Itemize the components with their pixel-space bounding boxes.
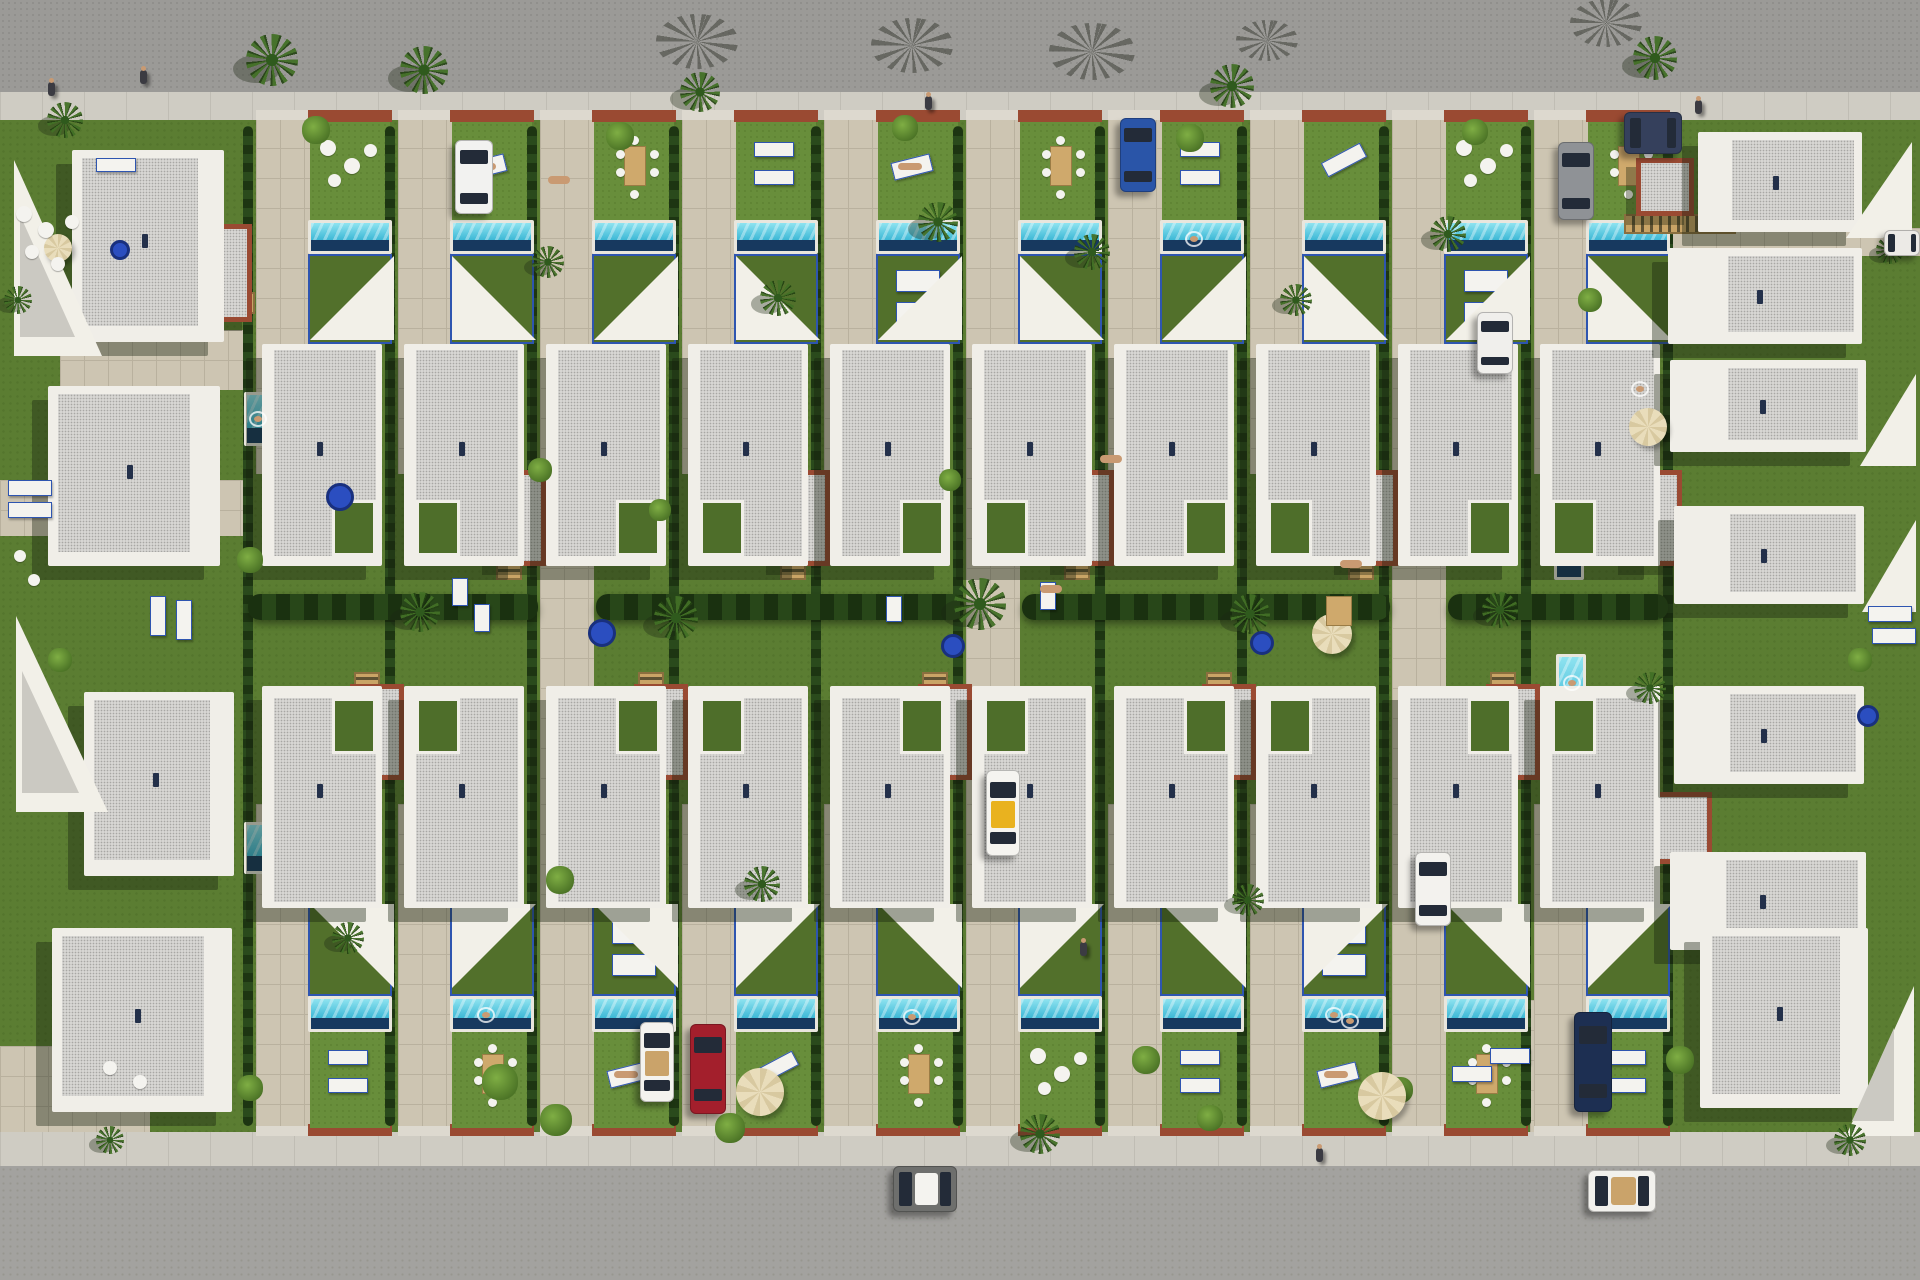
sunbather xyxy=(1040,585,1062,593)
drive-curb xyxy=(1250,110,1302,120)
windshield xyxy=(1630,118,1642,148)
dining-chair xyxy=(914,1098,923,1107)
townhouse xyxy=(404,686,524,908)
shrub xyxy=(939,469,961,491)
drive-curb xyxy=(540,110,592,120)
corner-villa xyxy=(1700,928,1868,1108)
townhouse xyxy=(1540,686,1660,908)
dining-chair xyxy=(1042,168,1051,177)
roof-hatch xyxy=(153,773,159,787)
drive-curb xyxy=(1534,110,1586,120)
drive-curb xyxy=(1392,1126,1444,1136)
garden-chair xyxy=(1464,174,1477,187)
dining-chair xyxy=(1076,150,1085,159)
townhouse xyxy=(830,344,950,566)
swimmer xyxy=(908,1014,916,1020)
windshield xyxy=(1481,321,1508,332)
palm-tree xyxy=(1834,1124,1866,1156)
palm-shadow xyxy=(871,18,953,72)
planter-curb xyxy=(734,110,818,122)
shrub xyxy=(649,499,671,521)
sun-lounger xyxy=(452,578,468,606)
palm-tree xyxy=(246,34,298,86)
garden-dining-set xyxy=(1326,596,1352,626)
roof-hatch xyxy=(1761,729,1767,743)
pool-water xyxy=(737,999,815,1018)
shrub xyxy=(482,1064,518,1100)
townhouse xyxy=(546,344,666,566)
dining-chair xyxy=(1502,1076,1511,1085)
shrub xyxy=(892,115,918,141)
garden-chair xyxy=(1030,1048,1046,1064)
swimming-pool xyxy=(450,220,534,254)
planter-curb xyxy=(1018,110,1102,122)
palm-shadow xyxy=(656,14,738,68)
car-sedan-blue xyxy=(1120,118,1156,192)
drive-curb xyxy=(682,110,734,120)
corner-villa xyxy=(1668,248,1862,344)
garden-chair xyxy=(1074,1052,1087,1065)
dining-chair xyxy=(474,1058,483,1067)
shrub xyxy=(606,122,634,150)
rear-window xyxy=(990,832,1016,844)
sun-lounger xyxy=(96,158,136,172)
corner-villa xyxy=(1698,132,1862,232)
roof-hatch xyxy=(601,442,607,456)
sunbather xyxy=(1340,560,1362,568)
car-car-edge-white xyxy=(1884,230,1920,256)
parasol xyxy=(1358,1072,1406,1120)
front-garden xyxy=(1304,122,1384,220)
garden-chair xyxy=(1054,1066,1070,1082)
pool-water xyxy=(595,999,673,1018)
sun-lounger xyxy=(176,600,192,640)
lounge-chair xyxy=(103,1061,117,1075)
palm-tree xyxy=(332,922,364,954)
sun-lounger xyxy=(1180,170,1220,185)
roof-hatch xyxy=(459,442,465,456)
annex-roof xyxy=(1636,158,1694,216)
corner-villa xyxy=(1670,360,1866,452)
swimming-pool xyxy=(734,996,818,1032)
sun-lounger xyxy=(1868,606,1912,622)
palm-tree xyxy=(400,46,448,94)
sun-lounger xyxy=(1180,1050,1220,1065)
roof-hatch xyxy=(1761,549,1767,563)
sun-lounger xyxy=(1606,1078,1646,1093)
garden-chair xyxy=(344,158,360,174)
palm-tree xyxy=(47,102,83,138)
shrub xyxy=(237,547,263,573)
pedestrian-head xyxy=(1696,96,1701,101)
roof-hatch xyxy=(1777,1007,1783,1021)
windshield xyxy=(644,1033,670,1047)
planter-curb xyxy=(450,110,534,122)
roof-patio xyxy=(416,500,460,556)
pedestrian xyxy=(1695,100,1702,114)
palm-tree xyxy=(1210,64,1254,108)
sun-lounger xyxy=(474,604,490,632)
dining-chair xyxy=(488,1044,497,1053)
palm-tree xyxy=(744,866,780,902)
roof-hatch xyxy=(1311,784,1317,798)
dining-chair xyxy=(1042,150,1051,159)
drive-curb xyxy=(398,110,450,120)
roof-hatch xyxy=(1760,895,1766,909)
garden-chair xyxy=(1038,1082,1051,1095)
roof-hatch xyxy=(1595,442,1601,456)
flat-roof xyxy=(1728,368,1858,440)
shrub xyxy=(48,648,72,672)
garden-chair xyxy=(364,144,377,157)
drive-curb xyxy=(824,110,876,120)
car-suv-white xyxy=(1415,852,1451,926)
palm-tree xyxy=(954,578,1006,630)
roof-hatch xyxy=(1453,784,1459,798)
shrub xyxy=(546,866,574,894)
corner-villa xyxy=(48,386,220,566)
dining-chair xyxy=(1056,136,1065,145)
roof-hatch xyxy=(1453,442,1459,456)
windshield xyxy=(1595,1176,1609,1206)
townhouse xyxy=(688,344,808,566)
corner-villa xyxy=(1674,686,1864,784)
dining-chair xyxy=(900,1076,909,1085)
round-table xyxy=(1250,631,1274,655)
townhouse xyxy=(262,344,382,566)
dining-chair xyxy=(1624,190,1633,199)
planter-curb xyxy=(876,110,960,122)
pedestrian-head xyxy=(49,78,54,83)
swimmer xyxy=(254,416,262,422)
swimmer xyxy=(1568,680,1576,686)
corner-villa xyxy=(84,692,234,876)
front-garden xyxy=(878,1030,958,1128)
flat-roof xyxy=(58,394,190,552)
roof-patio xyxy=(1184,698,1228,754)
drive-curb xyxy=(1250,1126,1302,1136)
roof-hatch xyxy=(317,442,323,456)
roof-hatch xyxy=(142,234,148,248)
swimming-pool xyxy=(1302,220,1386,254)
drive-curb xyxy=(824,1126,876,1136)
dining-chair xyxy=(1610,150,1619,159)
round-table xyxy=(326,483,354,511)
dining-chair xyxy=(650,150,659,159)
dining-chair xyxy=(616,150,625,159)
sun-lounger xyxy=(150,596,166,636)
rear-window xyxy=(1667,118,1676,148)
pool-water xyxy=(595,223,673,240)
sun-lounger xyxy=(1180,1078,1220,1093)
windshield xyxy=(990,782,1016,797)
roof-hatch xyxy=(459,784,465,798)
lounge-chair xyxy=(28,574,40,586)
drive-curb xyxy=(256,110,308,120)
palm-tree xyxy=(1074,234,1110,270)
car-sedan-white xyxy=(1477,312,1513,374)
swimmer xyxy=(1346,1018,1354,1024)
drive-curb xyxy=(966,1126,1018,1136)
dining-table xyxy=(908,1054,930,1094)
round-table xyxy=(1857,705,1879,727)
sunbather xyxy=(614,1071,638,1078)
shrub xyxy=(1666,1046,1694,1074)
pedestrian-head xyxy=(1317,1144,1322,1149)
drive-curb xyxy=(966,110,1018,120)
shrub xyxy=(540,1104,572,1136)
sunbather xyxy=(1324,1071,1348,1078)
pool-water xyxy=(311,999,389,1018)
rear-window xyxy=(1481,357,1508,366)
sun-lounger xyxy=(886,596,902,622)
dining-table xyxy=(1050,146,1072,186)
pool-water xyxy=(453,223,531,240)
swimmer xyxy=(1190,236,1198,242)
car-sedan-darkblue xyxy=(1624,112,1682,154)
swimmer xyxy=(482,1012,490,1018)
sun-lounger xyxy=(1490,1048,1530,1064)
car-sedan-red xyxy=(690,1024,726,1114)
dining-chair xyxy=(1076,168,1085,177)
windshield xyxy=(1579,1026,1608,1044)
shrub xyxy=(237,1075,263,1101)
garden-chair xyxy=(1480,158,1496,174)
sun-lounger xyxy=(1321,143,1367,178)
palm-tree xyxy=(1430,216,1466,252)
roof-patio xyxy=(332,698,376,754)
lounge-chair xyxy=(25,245,39,259)
pedestrian-head xyxy=(141,66,146,71)
roof-hatch xyxy=(1169,784,1175,798)
roof-hatch xyxy=(1595,784,1601,798)
roof-patio xyxy=(1184,500,1228,556)
dining-chair xyxy=(900,1058,909,1067)
parasol xyxy=(1629,408,1667,446)
palm-tree xyxy=(1230,594,1270,634)
dining-chair xyxy=(630,190,639,199)
roof-hatch xyxy=(1760,400,1766,414)
roof-hatch xyxy=(1773,176,1779,190)
drive-curb xyxy=(1392,110,1444,120)
swimming-pool xyxy=(592,220,676,254)
pool-water xyxy=(311,223,389,240)
flat-roof xyxy=(1712,936,1840,1094)
windshield xyxy=(1419,862,1446,875)
townhouse xyxy=(1540,344,1660,566)
car-convertible-road xyxy=(1588,1170,1656,1212)
aerial-site-plan-render xyxy=(0,0,1920,1280)
sunbather xyxy=(1100,455,1122,463)
roof-patio xyxy=(900,698,944,754)
roof-patio xyxy=(1268,500,1312,556)
townhouse xyxy=(1256,344,1376,566)
sun-lounger xyxy=(1452,1066,1492,1082)
pool-water xyxy=(1021,999,1099,1018)
roof-hatch xyxy=(1027,442,1033,456)
rear-window xyxy=(1579,1084,1608,1098)
roof-hatch xyxy=(135,1009,141,1023)
palm-tree xyxy=(1482,592,1518,628)
roof-patio xyxy=(984,698,1028,754)
palm-tree xyxy=(532,246,564,278)
dining-chair xyxy=(650,168,659,177)
sunbather xyxy=(548,176,570,184)
roof-hatch xyxy=(317,784,323,798)
car-roof xyxy=(1611,1177,1635,1206)
windshield xyxy=(1888,234,1895,253)
sun-lounger xyxy=(328,1078,368,1093)
flat-roof xyxy=(1730,514,1856,592)
front-garden xyxy=(310,1030,390,1128)
townhouse xyxy=(1398,344,1518,566)
pedestrian-head xyxy=(926,92,931,97)
flat-roof xyxy=(94,700,210,860)
pedestrian-head xyxy=(1081,938,1086,943)
flat-roof xyxy=(1726,860,1858,938)
car-roof xyxy=(915,1173,938,1204)
rear-window xyxy=(1419,905,1446,915)
roof-patio xyxy=(900,500,944,556)
dining-chair xyxy=(616,168,625,177)
annex-roof-deck xyxy=(1641,163,1689,211)
windshield xyxy=(460,150,489,163)
front-garden xyxy=(1020,122,1100,220)
corner-villa xyxy=(1674,506,1864,604)
round-table xyxy=(941,634,965,658)
sun-lounger xyxy=(754,170,794,185)
drive-curb xyxy=(1108,1126,1160,1136)
front-garden xyxy=(736,122,816,220)
rear-window xyxy=(940,1172,950,1205)
swimming-pool xyxy=(1444,996,1528,1032)
roof-hatch xyxy=(1757,290,1763,304)
rear-window xyxy=(1911,234,1917,253)
car-sedan-gray xyxy=(1558,142,1594,220)
roof-patio xyxy=(1468,698,1512,754)
shrub xyxy=(1176,124,1204,152)
rear-window xyxy=(460,193,489,203)
roof-patio xyxy=(1552,698,1596,754)
dining-chair xyxy=(934,1058,943,1067)
palm-tree xyxy=(760,280,796,316)
townhouse xyxy=(972,344,1092,566)
palm-tree xyxy=(1280,284,1312,316)
lounge-chair xyxy=(38,222,54,238)
roof-hatch xyxy=(743,442,749,456)
pool-water xyxy=(1447,999,1525,1018)
palm-shadow xyxy=(1570,0,1642,47)
rear-window xyxy=(1124,171,1151,181)
shrub xyxy=(1578,288,1602,312)
roof-patio xyxy=(700,500,744,556)
pedestrian xyxy=(1080,942,1087,956)
roof-hatch xyxy=(743,784,749,798)
swimming-pool xyxy=(1160,996,1244,1032)
rear-window xyxy=(694,1089,721,1102)
bottom-sidewalk xyxy=(0,1132,1920,1166)
roof-hatch xyxy=(1027,784,1033,798)
car-hatchback-road xyxy=(893,1166,957,1212)
rear-window xyxy=(1638,1176,1649,1206)
garden-chair xyxy=(328,174,341,187)
lounge-chair xyxy=(51,257,65,271)
pedestrian xyxy=(140,70,147,84)
pedestrian xyxy=(48,82,55,96)
lounge-chair xyxy=(16,206,32,222)
planter-curb xyxy=(1160,110,1244,122)
palm-tree xyxy=(680,72,720,112)
palm-tree xyxy=(1232,884,1264,916)
shrub xyxy=(302,116,330,144)
townhouse xyxy=(262,686,382,908)
palm-tree xyxy=(654,596,698,640)
townhouse xyxy=(404,344,524,566)
round-table xyxy=(110,240,130,260)
front-garden xyxy=(1020,1030,1100,1128)
drive-curb xyxy=(256,1126,308,1136)
shrub xyxy=(715,1113,745,1143)
palm-tree xyxy=(1634,672,1666,704)
roof-hatch xyxy=(1169,442,1175,456)
car-suv-white xyxy=(455,140,493,214)
roof-hatch xyxy=(601,784,607,798)
roof-hatch xyxy=(885,442,891,456)
sun-lounger xyxy=(328,1050,368,1065)
garden-chair xyxy=(1500,144,1513,157)
shrub xyxy=(1197,1105,1223,1131)
roof-patio xyxy=(416,698,460,754)
shrub xyxy=(1132,1046,1160,1074)
car-taxi xyxy=(986,770,1020,856)
sun-lounger xyxy=(754,142,794,157)
windshield xyxy=(899,1172,912,1205)
palm-tree xyxy=(96,1126,124,1154)
sun-lounger xyxy=(1872,628,1916,644)
palm-tree xyxy=(1020,1114,1060,1154)
swimmer xyxy=(1330,1012,1338,1018)
townhouse xyxy=(830,686,950,908)
townhouse xyxy=(1114,686,1234,908)
shrub xyxy=(528,458,552,482)
palm-tree xyxy=(1633,36,1677,80)
swimming-pool xyxy=(308,220,392,254)
planter-curb xyxy=(1302,110,1386,122)
flat-roof xyxy=(62,936,204,1096)
pool-water xyxy=(737,223,815,240)
palm-tree xyxy=(918,202,958,242)
windshield xyxy=(1562,153,1589,167)
sunbather xyxy=(898,163,922,170)
corner-villa xyxy=(72,150,224,342)
palm-tree xyxy=(4,286,32,314)
swimmer xyxy=(1636,386,1644,392)
flat-roof xyxy=(82,158,198,326)
planter-curb xyxy=(1444,110,1528,122)
flat-roof xyxy=(1730,694,1856,772)
townhouse xyxy=(1114,344,1234,566)
car-convertible-white xyxy=(640,1022,674,1102)
lounge-chair xyxy=(133,1075,147,1089)
windshield xyxy=(1124,128,1151,141)
flat-roof xyxy=(1732,140,1854,220)
round-table xyxy=(588,619,616,647)
roof-patio xyxy=(1268,698,1312,754)
pedestrian xyxy=(1316,1148,1323,1162)
flat-roof xyxy=(1728,256,1854,332)
lounge-chair xyxy=(14,550,26,562)
swimming-pool xyxy=(734,220,818,254)
